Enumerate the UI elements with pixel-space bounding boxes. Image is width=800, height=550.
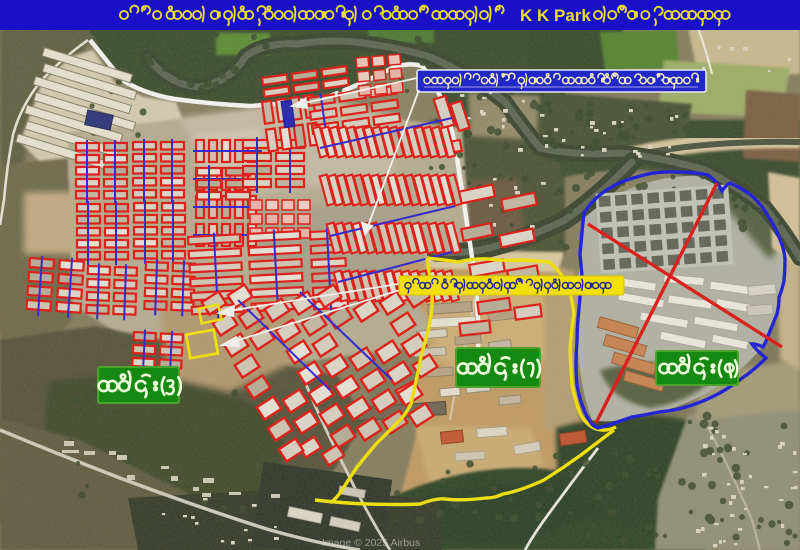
svg-text:Image © 2025 Airbus: Image © 2025 Airbus bbox=[322, 537, 420, 549]
svg-text:K K Park: K K Park bbox=[520, 6, 591, 25]
